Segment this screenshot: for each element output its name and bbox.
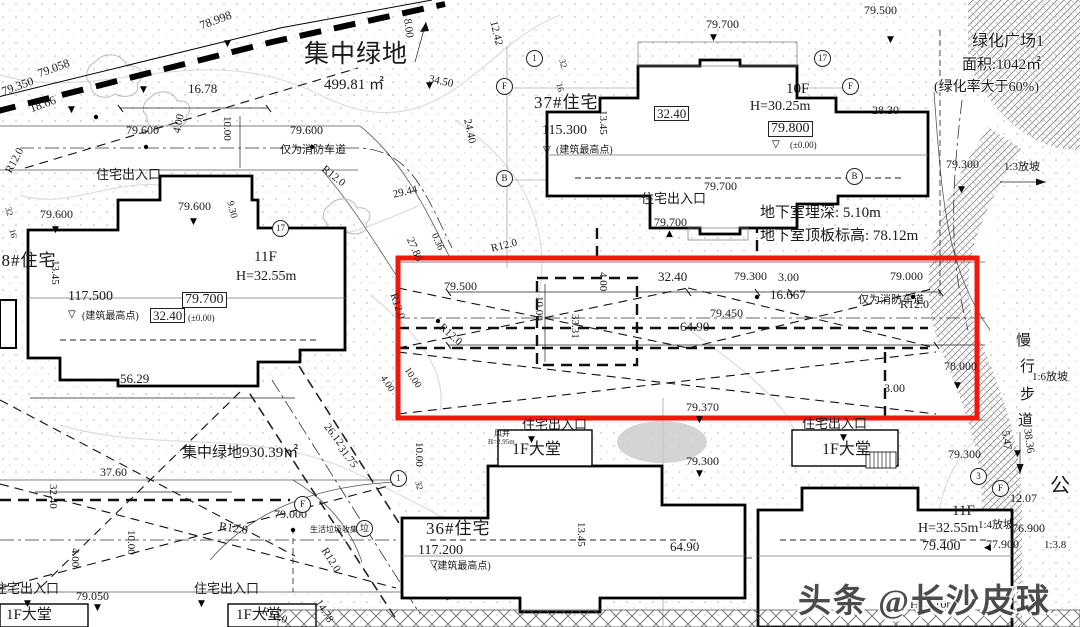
elevation-label: 79.600 [178, 200, 211, 212]
elevation-label: 79.500 [444, 280, 477, 292]
entrance-label-b37: 住宅出入口 [641, 192, 706, 205]
dim-label: 12.42 [487, 20, 504, 47]
elevation-label: 79.400 [922, 540, 961, 554]
entrance-label-topleft: 住宅出入口 [96, 168, 161, 181]
elevation-label: 79.050 [76, 590, 109, 602]
grid-bubble: F [842, 78, 859, 95]
dim-label: 10.00 [413, 442, 424, 467]
building-36-roof-note: (建筑最高点) [434, 562, 491, 572]
elevation-label: 79.370 [686, 401, 719, 413]
street-text: 公 [1050, 476, 1070, 496]
grid-bubble: 1 [390, 470, 407, 487]
dim-label: 16 [7, 228, 18, 239]
level-marker: ▽ [68, 310, 76, 320]
grid-bubble: 1 [526, 50, 543, 67]
dim-label: 28.30 [872, 104, 899, 116]
slope-label: 1:6放坡 [1032, 372, 1068, 383]
dim-label: 32 [3, 206, 14, 217]
path-text: 行 [1020, 360, 1035, 375]
building-37-ground-note: (±0.00) [790, 141, 817, 150]
elevation-label: 76.900 [1012, 522, 1045, 534]
fire-lane-label-top: 仅为消防车道 [280, 145, 346, 156]
dim-label: 14.78 [313, 598, 335, 625]
slope-label: 1:3放坡 [1004, 162, 1040, 173]
building-37-name: 37#住宅 [534, 94, 599, 111]
grid-bubble: 17 [272, 220, 289, 237]
site-plan: 79.35079.05878.99818.6616.7879.60079.600… [0, 0, 1080, 627]
grid-bubble: 3 [970, 468, 987, 485]
radius-label: R12.0 [490, 238, 518, 255]
elevation-label: 79.600 [290, 124, 323, 136]
dim-label: 32.40 [658, 270, 687, 283]
elevation-label: 79.700 [704, 180, 737, 192]
elevation-label: 79.300 [948, 448, 981, 460]
dim-label: 32 [557, 58, 568, 69]
basement-roof-elevation-note: 地下室顶板标高: 78.12m [760, 229, 918, 244]
radius-label: R12.0 [218, 520, 248, 536]
lobby-label-bottomleft-2: 1F大堂 [236, 608, 282, 623]
path-text: 道 [1018, 414, 1033, 429]
level-marker: ▼ [94, 604, 101, 613]
building-37-floors: 10F [786, 82, 809, 97]
grid-bubble: B [846, 168, 863, 185]
lobby-label-bottomleft-1: 1F大堂 [6, 608, 52, 623]
elevation-label: 79.700 [654, 216, 687, 228]
level-marker: ▼ [696, 416, 703, 425]
dim-label: 32.40 [654, 106, 689, 121]
elevation-label: 79.450 [710, 307, 743, 319]
dim-label: 9.30 [224, 200, 238, 219]
radius-label: R12.0 [319, 546, 342, 574]
level-marker: ▽ [543, 146, 551, 156]
building-38-name: 38#住宅 [0, 252, 57, 269]
dim-label: 16 [554, 82, 565, 93]
dim-label: 32 [413, 480, 424, 491]
dim-label: 13.45 [575, 522, 586, 547]
dim-label: 8.00 [401, 18, 415, 39]
dim-label: 4.00 [172, 113, 187, 134]
entrance-label-b36: 住宅出入口 [522, 418, 587, 431]
building-36-name: 36#住宅 [426, 520, 491, 537]
dim-label: 13.45 [597, 110, 608, 135]
building-38-ground-elevation: 79.700 [182, 292, 227, 308]
dim-label: 0.36 [429, 232, 445, 252]
level-marker: ▼ [710, 34, 717, 43]
level-marker: ▼ [958, 186, 965, 195]
dim-label: 3.00 [884, 382, 905, 394]
level-marker: ▼ [224, 40, 231, 49]
dim-label: 5.47 [999, 430, 1013, 451]
dim-label: 64.90 [670, 540, 699, 553]
dim-label: 32.40 [47, 484, 58, 509]
elevation-label: 79.500 [864, 4, 897, 16]
dim-label: 3.00 [778, 271, 799, 283]
elevation-label: 79.000 [890, 270, 923, 282]
grid-bubble: B [496, 170, 513, 187]
dim-label: 10.00 [533, 296, 544, 321]
elevation-label: 79.058 [36, 57, 71, 80]
path-text: 慢 [1016, 334, 1031, 349]
building-38-height: H=32.55m [236, 270, 296, 284]
building-38-roof-note: (建筑最高点) [82, 312, 139, 322]
elevation-label: 79.300 [946, 158, 979, 170]
level-marker: ▼ [954, 382, 961, 391]
grid-bubble: F [992, 480, 1009, 497]
dim-label: 10.00 [402, 366, 423, 390]
lobby-label-b36: 1F大堂 [512, 442, 561, 458]
dim-label: 4.00 [378, 374, 396, 394]
building-37-roof-elevation: 115.300 [542, 124, 587, 138]
level-marker: ▼ [887, 36, 894, 45]
dim-label: 12.07 [1010, 492, 1037, 504]
level-marker: ▼ [426, 82, 433, 91]
dim-label: 4.00 [69, 548, 80, 567]
slope-label: 1:3.8 [1044, 540, 1066, 551]
radius-label: R12.0 [319, 164, 347, 189]
level-marker: ▲ [666, 230, 673, 239]
radius-label: R12.0 [388, 292, 407, 321]
dim-label: 16.667 [770, 288, 806, 301]
dim-label: 16.78 [188, 82, 217, 95]
dim-label: 29.44 [392, 184, 419, 200]
elevation-label: 79.600 [126, 124, 159, 136]
plaza-name: 绿化广场1 [972, 34, 1044, 50]
entrance-label-bottomleft-1: 住宅出入口 [0, 582, 59, 595]
elevation-label: 78.000 [944, 360, 977, 372]
building-38-roof-elevation: 117.500 [68, 290, 113, 304]
dim-label: 10.00 [221, 116, 232, 141]
level-marker: ▼ [52, 226, 59, 235]
entrance-label-bottomleft-2: 住宅出入口 [194, 582, 259, 595]
level-marker: ▼ [140, 86, 147, 95]
radius-label: R12.0 [4, 147, 26, 176]
dim-label: H=2.95m [488, 439, 515, 446]
green-area-south-label: 集中绿地930.39㎡ [182, 446, 298, 461]
elevation-label: 78.998 [198, 9, 233, 32]
elevation-label: 79.300 [734, 270, 767, 282]
path-text: 步 [1020, 388, 1035, 403]
building-right-floors: 11F [952, 504, 975, 519]
building-37-roof-note: (建筑最高点) [556, 146, 613, 156]
dim-label: 27.86 [404, 236, 424, 263]
dim-label: 10.00 [125, 530, 136, 555]
level-marker: ▼ [190, 218, 197, 227]
dim-label: 56.29 [120, 372, 149, 385]
entrance-label-right: 住宅出入口 [802, 417, 867, 430]
radius-label: R12.0 [437, 322, 464, 348]
plaza-area: 面积:1042㎡ [962, 58, 1041, 73]
building-right-height: H=32.55m [918, 522, 978, 536]
level-marker: ▽ [772, 140, 780, 150]
basement-depth-note: 地下室埋深: 5.10m [760, 206, 881, 221]
level-marker: ▼ [1014, 450, 1021, 459]
level-marker: ▼ [198, 600, 205, 609]
grid-bubble: 垃 [356, 520, 373, 537]
fire-lane-label-center: 仅为消防车道 [858, 295, 924, 306]
plaza-note: (绿化率大于60%) [934, 81, 1039, 95]
dim-label: 24.40 [461, 118, 477, 144]
dim-label: 31.75 [335, 444, 359, 470]
elevation-label: 79.300 [686, 455, 719, 467]
watermark-text: 头条 @长沙皮球选房 长 [798, 574, 1080, 627]
dim-label: 18.66 [28, 94, 57, 115]
elevation-label: 79.600 [40, 208, 73, 220]
building-38-roof-dim: 32.40 [150, 308, 185, 323]
building-36-roof-elevation: 117.200 [418, 544, 463, 558]
building-38-floors: 11F [254, 250, 277, 265]
grid-bubble: 17 [814, 50, 831, 67]
green-area-north-area: 499.81 ㎡ [324, 78, 384, 93]
building-38-ground-note: (±0.00) [188, 314, 215, 323]
elevation-label: 79.700 [706, 18, 739, 30]
slope-label: 1:4放坡 [978, 520, 1014, 531]
green-area-north-name: 集中绿地 [304, 42, 408, 67]
building-37-height: H=30.25m [750, 100, 810, 114]
level-marker: ▼ [68, 106, 75, 115]
dim-label: 38.36 [1021, 428, 1035, 454]
grid-bubble: F [496, 78, 513, 95]
dim-label: 33.31 [569, 314, 580, 339]
dim-label: 64.90 [680, 320, 709, 333]
level-marker: ▼ [696, 470, 703, 479]
dim-label: 4.00 [597, 272, 608, 291]
level-marker: ◀ [984, 544, 991, 553]
elevation-label: 79.350 [0, 75, 35, 98]
dim-label: 风井 [494, 430, 510, 438]
building-37-ground-elevation: 79.800 [768, 121, 813, 137]
lobby-label-right: 1F大堂 [822, 442, 871, 458]
grid-bubble: F [294, 496, 311, 513]
dim-label: 37.60 [100, 466, 127, 478]
